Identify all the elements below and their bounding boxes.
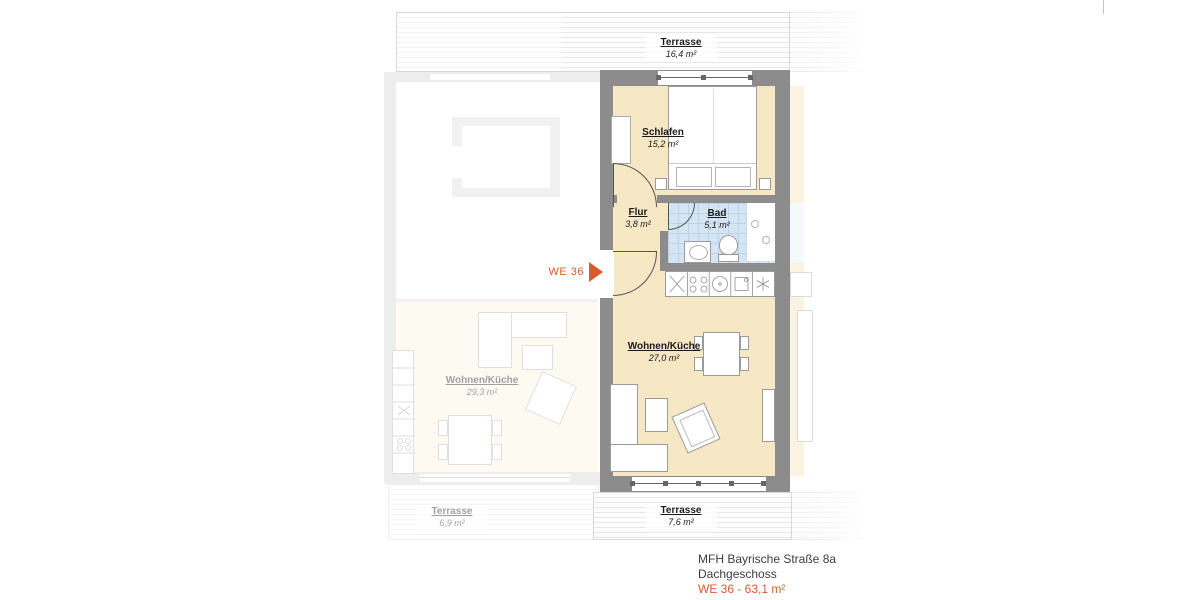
window-mullion xyxy=(663,481,668,486)
wall-bad-kitchen xyxy=(660,263,775,271)
neighbor-left-room-label: Wohnen/Küche 29,3 m² xyxy=(430,374,534,399)
toilet-bowl xyxy=(719,235,738,255)
bad-label: Bad 5,1 m² xyxy=(691,207,743,232)
unit-marker-arrow-icon xyxy=(589,262,603,282)
flur-area: 3,8 m² xyxy=(615,219,661,231)
title-building: MFH Bayrische Straße 8a xyxy=(698,552,836,567)
stairwell-interior xyxy=(462,126,550,188)
neighbor-left-window-bottom xyxy=(420,474,570,482)
terrace-bottom-area: 7,6 m² xyxy=(645,517,717,529)
schlafen-label: Schlafen 15,2 m² xyxy=(622,126,704,151)
bedroom-door-leaf xyxy=(613,163,614,207)
pillow xyxy=(676,167,712,187)
sink-unit-icon xyxy=(670,276,684,292)
window-mullion xyxy=(761,481,766,486)
nightstand xyxy=(655,178,667,190)
neighbor-stove-icon xyxy=(398,439,411,451)
page-edge-mark xyxy=(1103,0,1104,14)
washbasin xyxy=(684,241,711,263)
schlafen-name: Schlafen xyxy=(622,126,704,139)
bad-area: 5,1 m² xyxy=(691,220,743,232)
floor-plan-canvas: Wohnen/Küche 29,3 m² Terrasse 6,9 m² xyxy=(0,0,1200,600)
neighbor-left-chair xyxy=(438,444,448,460)
terrace-top-area: 16,4 m² xyxy=(645,49,717,61)
window-mullion xyxy=(696,481,701,486)
bathroom-door-leaf xyxy=(668,203,669,230)
stove-icon xyxy=(690,277,707,292)
coffee-table xyxy=(645,398,668,432)
window-mullion xyxy=(748,75,753,80)
neighbor-left-coffee-table xyxy=(522,345,553,370)
terrace-bottom-label: Terrasse 7,6 m² xyxy=(645,504,717,529)
unit-marker-label: WE 36 xyxy=(520,266,584,278)
shower-drain-icon xyxy=(762,236,770,244)
washbasin-bowl xyxy=(689,245,708,260)
neighbor-left-dining-table xyxy=(448,415,492,465)
neighbor-left-room-area: 29,3 m² xyxy=(430,387,534,399)
terrace-bottom-name: Terrasse xyxy=(645,504,717,517)
shower xyxy=(746,203,775,261)
neighbor-left-chair xyxy=(492,444,502,460)
kitchen-counter xyxy=(665,271,775,297)
window-mullion xyxy=(729,481,734,486)
terrace-top-name: Terrasse xyxy=(645,36,717,49)
window-mullion xyxy=(701,75,706,80)
sideboard xyxy=(762,389,775,442)
kitchen-appliances-icons xyxy=(666,272,774,296)
neighbor-sink-icon xyxy=(398,406,410,415)
neighbor-left-terrace-label: Terrasse 6,9 m² xyxy=(416,505,488,530)
dining-chair xyxy=(740,336,749,350)
neighbor-left-chair xyxy=(438,420,448,436)
title-unit: WE 36 - 63,1 m² xyxy=(698,582,836,597)
schlafen-area: 15,2 m² xyxy=(622,139,704,151)
neighbor-left-terrace-area: 6,9 m² xyxy=(416,518,488,530)
stairwell-door-gap xyxy=(452,146,462,178)
shower-head-icon xyxy=(751,220,759,228)
neighbor-left-sofa-side xyxy=(478,312,512,368)
wohnen-label: Wohnen/Küche 27,0 m² xyxy=(616,340,712,365)
basin-icon xyxy=(713,277,728,292)
right-fade-overlay xyxy=(804,0,904,600)
terrace-top-label: Terrasse 16,4 m² xyxy=(645,36,717,61)
wall-flur-bad xyxy=(660,231,668,263)
sofa-horizontal xyxy=(610,444,668,472)
neighbor-kitchen-icons xyxy=(393,351,415,475)
entrance-door-leaf xyxy=(613,251,657,252)
title-block: MFH Bayrische Straße 8a Dachgeschoss WE … xyxy=(698,552,836,597)
sink-tap-icon xyxy=(735,278,748,291)
neighbor-left-window-top xyxy=(430,74,550,80)
neighbor-left-window-bottom-line xyxy=(420,477,570,478)
neighbor-left-room-name: Wohnen/Küche xyxy=(430,374,534,387)
toilet xyxy=(716,235,742,263)
bed-center-line xyxy=(713,89,714,163)
title-floor: Dachgeschoss xyxy=(698,567,836,582)
bad-name: Bad xyxy=(691,207,743,220)
neighbor-left-chair xyxy=(492,420,502,436)
window-mullion xyxy=(656,75,661,80)
wohnen-name: Wohnen/Küche xyxy=(616,340,712,353)
vent-icon xyxy=(757,277,769,291)
armchair-seat xyxy=(679,410,715,448)
neighbor-left-kitchen-row xyxy=(392,350,414,474)
wall-schlafen-bad xyxy=(657,195,775,203)
pillow xyxy=(715,167,751,187)
wohnen-area: 27,0 m² xyxy=(616,353,712,365)
toilet-tank xyxy=(718,254,739,262)
window-mullion xyxy=(630,481,635,486)
bed-foot-line xyxy=(669,163,756,164)
wall-right xyxy=(775,70,790,492)
flur-name: Flur xyxy=(615,206,661,219)
neighbor-left-terrace-name: Terrasse xyxy=(416,505,488,518)
nightstand xyxy=(759,178,771,190)
dining-chair xyxy=(740,357,749,371)
flur-label: Flur 3,8 m² xyxy=(615,206,661,231)
